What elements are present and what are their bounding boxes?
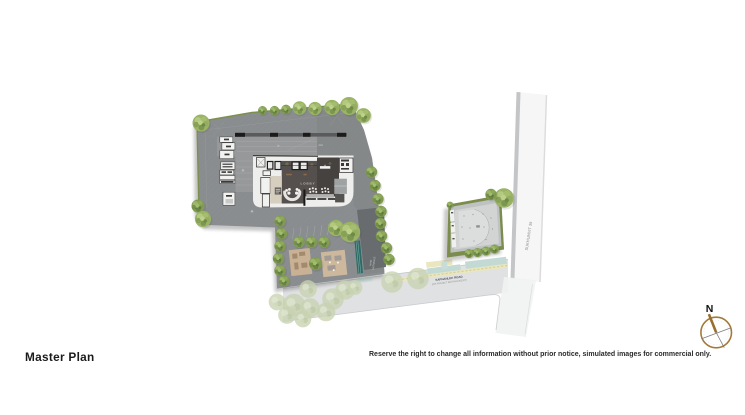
svg-text:N: N: [706, 303, 714, 315]
svg-text:LOBBY: LOBBY: [301, 181, 316, 185]
